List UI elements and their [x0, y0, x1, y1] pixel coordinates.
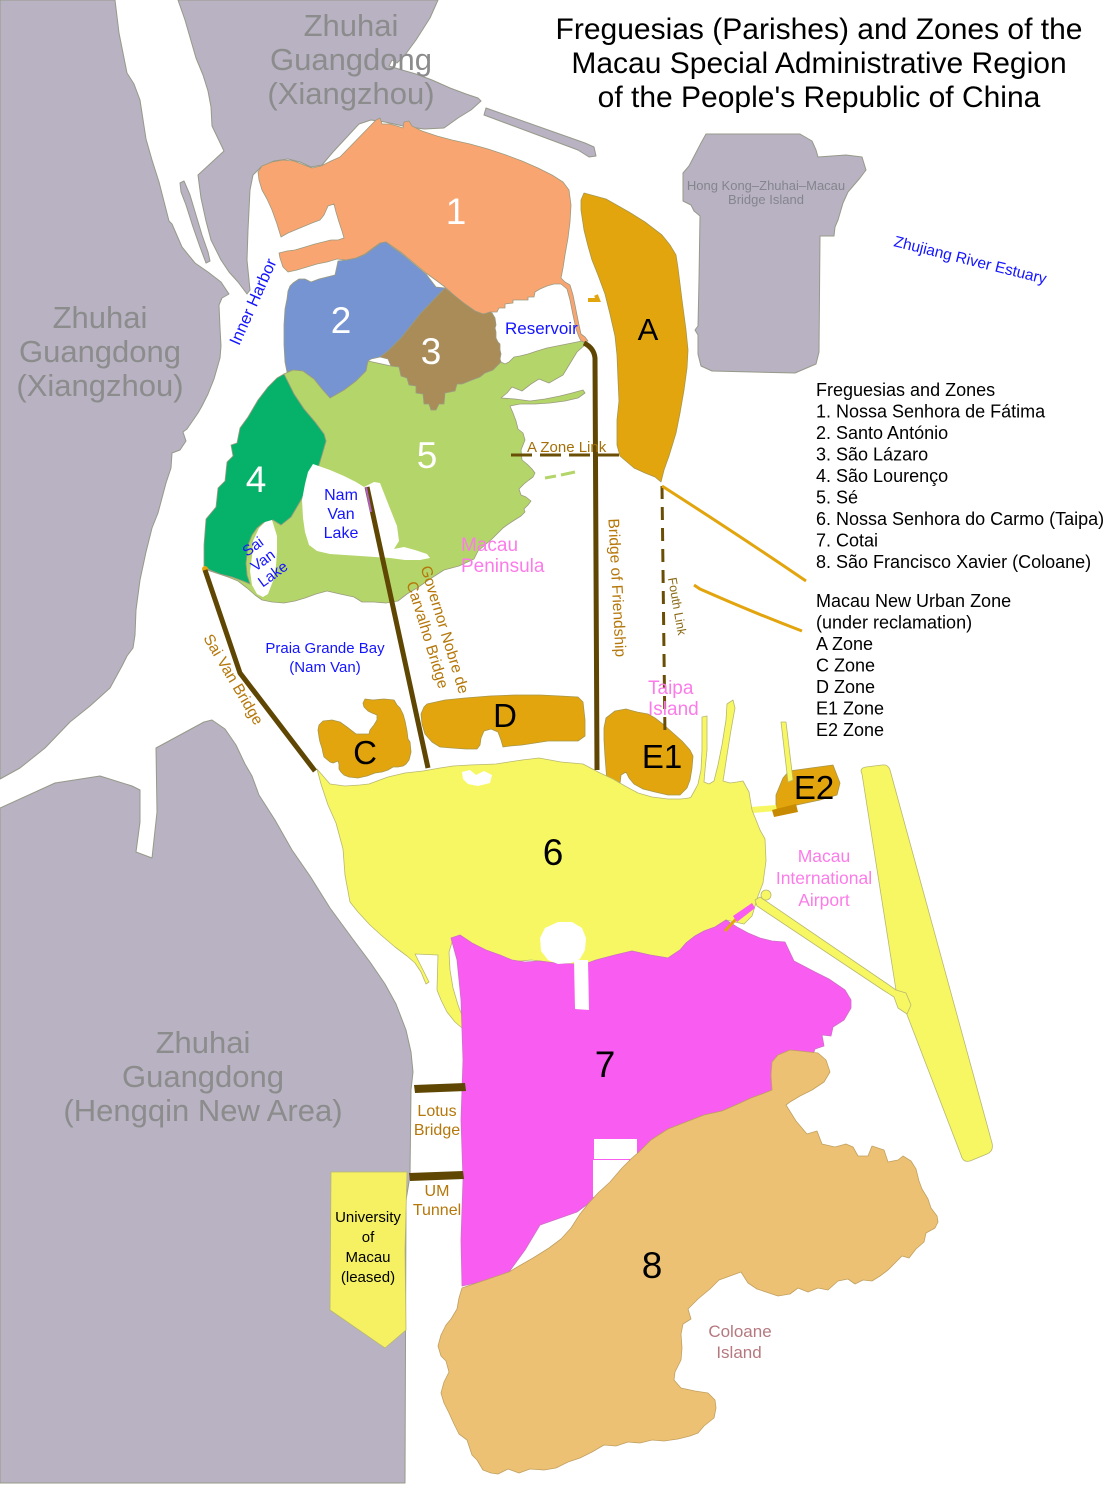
svg-text:Lotus: Lotus	[417, 1103, 456, 1120]
svg-text:Van: Van	[327, 506, 354, 523]
svg-text:5: 5	[417, 435, 438, 476]
svg-text:Lake: Lake	[324, 525, 359, 542]
svg-text:5. Sé: 5. Sé	[816, 488, 858, 508]
svg-text:Bridge Island: Bridge Island	[728, 192, 804, 207]
svg-text:8. São Francisco Xavier (Coloa: 8. São Francisco Xavier (Coloane)	[816, 552, 1091, 572]
svg-text:University: University	[335, 1209, 401, 1226]
svg-text:(Hengqin New Area): (Hengqin New Area)	[63, 1093, 342, 1128]
svg-text:3. São Lázaro: 3. São Lázaro	[816, 445, 928, 465]
svg-text:Macau: Macau	[345, 1249, 390, 1266]
svg-text:Zhuhai: Zhuhai	[53, 300, 148, 335]
svg-text:Tunnel: Tunnel	[413, 1202, 461, 1219]
svg-text:7. Cotai: 7. Cotai	[816, 531, 878, 551]
svg-text:Zhuhai: Zhuhai	[156, 1025, 251, 1060]
svg-text:(under reclamation): (under reclamation)	[816, 613, 972, 633]
svg-text:Taipa: Taipa	[648, 678, 694, 699]
svg-text:of the People's Republic of Ch: of the People's Republic of China	[598, 81, 1041, 114]
svg-text:Reservoir: Reservoir	[505, 319, 578, 338]
svg-text:7: 7	[595, 1044, 616, 1085]
svg-text:Zhuhai: Zhuhai	[304, 8, 399, 43]
svg-text:Nam: Nam	[324, 487, 358, 504]
svg-text:Guangdong: Guangdong	[122, 1059, 284, 1094]
svg-text:3: 3	[421, 331, 442, 372]
svg-text:(Xiangzhou): (Xiangzhou)	[267, 76, 434, 111]
svg-text:(Nam Van): (Nam Van)	[289, 659, 360, 676]
svg-text:of: of	[362, 1229, 375, 1246]
svg-text:A Zone: A Zone	[816, 634, 873, 654]
svg-text:E2: E2	[794, 769, 834, 806]
svg-text:Guangdong: Guangdong	[19, 334, 181, 369]
svg-text:Airport: Airport	[798, 890, 850, 910]
svg-text:E2 Zone: E2 Zone	[816, 720, 884, 740]
svg-text:UM: UM	[425, 1183, 450, 1200]
svg-text:Guangdong: Guangdong	[270, 42, 432, 77]
svg-text:International: International	[776, 868, 872, 888]
svg-text:A: A	[638, 312, 659, 347]
svg-text:4: 4	[246, 459, 267, 500]
svg-text:Freguesias and Zones: Freguesias and Zones	[816, 380, 995, 400]
svg-text:D: D	[493, 697, 517, 734]
svg-text:1: 1	[446, 191, 467, 232]
svg-text:6. Nossa Senhora do Carmo (Tai: 6. Nossa Senhora do Carmo (Taipa)	[816, 509, 1104, 529]
svg-text:Coloane: Coloane	[708, 1322, 771, 1341]
svg-text:Macau: Macau	[798, 846, 851, 866]
svg-text:Peninsula: Peninsula	[461, 556, 545, 577]
svg-text:Praia Grande Bay: Praia Grande Bay	[265, 640, 385, 657]
svg-text:4. São Lourenço: 4. São Lourenço	[816, 466, 948, 486]
svg-text:(leased): (leased)	[341, 1269, 395, 1286]
svg-text:C: C	[353, 734, 377, 771]
svg-text:Macau Special Administrative R: Macau Special Administrative Region	[571, 47, 1066, 80]
svg-text:(Xiangzhou): (Xiangzhou)	[16, 368, 183, 403]
svg-text:1. Nossa Senhora de Fátima: 1. Nossa Senhora de Fátima	[816, 402, 1046, 422]
svg-text:E1: E1	[642, 738, 682, 775]
svg-text:Bridge: Bridge	[414, 1122, 460, 1139]
svg-text:6: 6	[543, 832, 564, 873]
svg-text:2. Santo António: 2. Santo António	[816, 423, 948, 443]
svg-text:Macau: Macau	[461, 535, 518, 556]
svg-text:8: 8	[642, 1245, 663, 1286]
svg-text:Island: Island	[716, 1343, 761, 1362]
svg-text:A Zone Link: A Zone Link	[527, 439, 607, 456]
svg-text:C Zone: C Zone	[816, 656, 875, 676]
svg-text:2: 2	[331, 300, 352, 341]
svg-text:Island: Island	[648, 699, 699, 720]
svg-text:Hong Kong–Zhuhai–Macau: Hong Kong–Zhuhai–Macau	[687, 178, 845, 193]
svg-text:E1 Zone: E1 Zone	[816, 699, 884, 719]
svg-text:Freguesias (Parishes) and Zone: Freguesias (Parishes) and Zones of the	[556, 13, 1083, 46]
svg-text:Macau New Urban Zone: Macau New Urban Zone	[816, 591, 1011, 611]
svg-text:D Zone: D Zone	[816, 677, 875, 697]
